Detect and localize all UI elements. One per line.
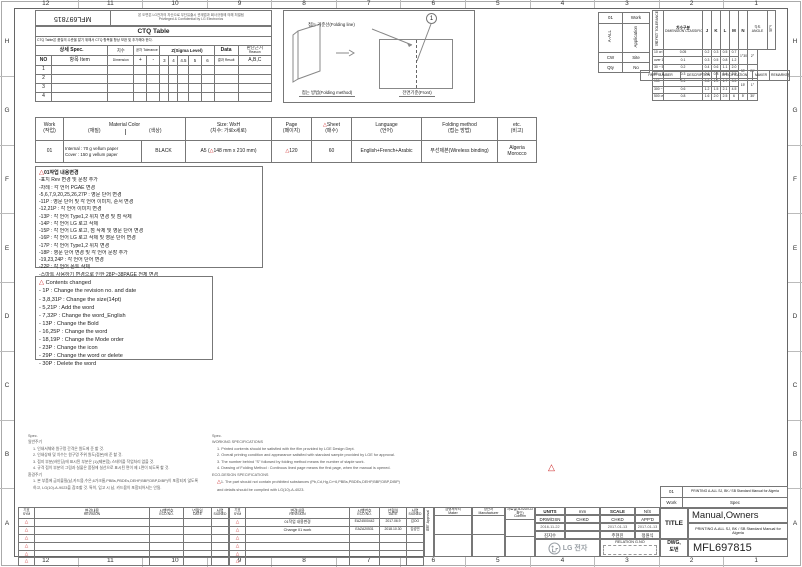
- ruler-col-label: 9: [208, 0, 273, 8]
- tolerance-angle-value: 1°30′: [739, 50, 748, 65]
- revision-text: [35, 558, 150, 566]
- changes-ko-box: △01작업 내용변경 -표지 Rev 변경 및 문장 추가-차례 : 각 언어 …: [35, 166, 263, 268]
- ctq-empty-cell: [134, 84, 147, 93]
- ctq-empty-cell: [52, 93, 108, 102]
- ruler-col-label: 6: [401, 0, 466, 8]
- ruler-row-label: G: [0, 77, 14, 146]
- ruler-col-label: 5: [466, 557, 531, 567]
- ctq-empty-cell: [134, 75, 147, 84]
- tolerance-angle-value: 5′: [739, 93, 748, 100]
- revision-row: △: [19, 534, 229, 542]
- ruler-col-label: 5: [466, 0, 531, 8]
- tolerance-range: over 10 ~ 30 or less: [653, 57, 664, 64]
- revision-triangle-icon: △: [25, 558, 28, 563]
- change-line: - 16,25P : Change the word: [39, 328, 209, 336]
- ruler-col-label: 10: [143, 0, 208, 8]
- spec-material-value: Internal : 70 g vellum paperCover : 150 …: [64, 141, 142, 163]
- tolerance-value: 2.0: [712, 93, 721, 100]
- revision-sym-cell: △: [19, 550, 35, 558]
- ctq-row: 4: [36, 93, 272, 102]
- revision-date: [380, 550, 407, 558]
- ctq-row-number: 4: [36, 93, 52, 102]
- tolerance-value: 6: [730, 93, 739, 100]
- ruler-row-label: A: [0, 489, 14, 557]
- revision-text: [246, 558, 350, 566]
- ruler-col-label: 1: [724, 0, 788, 8]
- notes-left: Spec.일반주기1. 인쇄서체와 원구멍 간격은 원도에 준 할 것.2. 인…: [28, 433, 210, 491]
- revision-eco-no: [150, 519, 184, 527]
- tolerance-value: 0.7: [730, 50, 739, 57]
- ctq-row-number: 3: [36, 84, 52, 93]
- revision-text: [246, 550, 350, 558]
- folding-diagram: 1 접는 기준선(Folding line) 접는 방법(Folding met…: [283, 10, 475, 103]
- revision-table-right: 기호SYM 변경내용REVISION 시행번호ECO.NO. 년월일DATE 서…: [229, 507, 424, 566]
- revision-eco-no: [150, 542, 184, 550]
- ctq-empty-cell: [238, 66, 271, 75]
- front-view-square: [379, 39, 453, 89]
- notes-line: 하고, LG(10)-A-9023을 참조할 것. 특히, 입고 시 납, 카드…: [28, 485, 210, 491]
- lg-logo: LG 전자: [535, 539, 600, 557]
- ctq-empty-cell: [52, 75, 108, 84]
- change-line: - 5,21P : Add the word: [39, 304, 209, 312]
- tolerance-side-label: 일반공차 TOLERANCE: [656, 11, 659, 46]
- revision-sym-cell: △: [19, 534, 35, 542]
- drw-dsn-label: DRW/DSN: [535, 515, 565, 523]
- ctq-col-spec: 상세 Spec.: [36, 46, 108, 56]
- revision-eco-no: [150, 526, 184, 534]
- ctq-empty-cell: [214, 75, 238, 84]
- revision-row: △: [230, 534, 424, 542]
- change-line: - 13P : Change the Bold: [39, 320, 209, 328]
- revision-signed: [407, 550, 424, 558]
- ruler-col-label: 1: [724, 557, 788, 567]
- ctq-empty-cell: [238, 93, 271, 102]
- tolerance-value: 0.05: [664, 50, 703, 57]
- dwg-number: MFL697815: [688, 539, 788, 557]
- ruler-row-label: F: [788, 146, 802, 215]
- revision-row: △: [19, 519, 229, 527]
- ruler-row-label: B: [0, 421, 14, 490]
- ruler-row-label: G: [788, 77, 802, 146]
- change-line: -22P : 각 언어 폰트 삭제: [39, 264, 259, 271]
- change-line: -18P : 영문 단어 변경 및 각 언어 문장 추가: [39, 250, 259, 257]
- revision-row: △: [19, 542, 229, 550]
- callout-1: 1: [426, 13, 437, 24]
- ctq-empty-cell: [201, 75, 214, 84]
- revision-date: [184, 542, 212, 550]
- revision-triangle-icon: △: [25, 527, 28, 532]
- revision-sym-cell: △: [230, 534, 246, 542]
- confirm-column: 자료실(3D/2D/CD확인)Confirm: [505, 507, 535, 557]
- ruler-row-label: E: [788, 214, 802, 283]
- revision-eco-no: [350, 534, 380, 542]
- revision-triangle-icon: △: [236, 519, 239, 524]
- appd-name: 정원식: [635, 531, 660, 539]
- ctq-empty-cell: [214, 93, 238, 102]
- revision-mark-triangle: △: [548, 462, 555, 473]
- spec-color-value: BLACK: [142, 141, 186, 163]
- revision-triangle-icon: △: [25, 535, 28, 540]
- revision-date: 2018.10.30: [380, 526, 407, 534]
- tolerance-range: 10 or less: [653, 50, 664, 57]
- tolerance-value: 2.1: [721, 86, 730, 93]
- ctq-empty-cell: [169, 84, 178, 93]
- ctq-empty-cell: [178, 66, 189, 75]
- change-line: -19,23,24P : 각 언어 단어 변경: [39, 257, 259, 264]
- revision-sym-cell: △: [230, 542, 246, 550]
- ruler-row-label: H: [0, 8, 14, 77]
- ctq-empty-cell: [189, 93, 201, 102]
- revision-signed: [212, 558, 229, 566]
- ctq-empty-cell: [52, 84, 108, 93]
- header-left-block: MFL697815 본 도면은 LG전자의 자산으로 무단유출시 관계법과 회사…: [35, 10, 272, 102]
- work-application-table: 01Work A-ALLApplication CWSite QtyNo: [598, 12, 650, 73]
- revision-text: Change 01 work: [246, 526, 350, 534]
- tolerance-angle-value: 2°: [748, 50, 758, 65]
- revision-date: [380, 542, 407, 550]
- revision-row: △01작업 내용변경EAZ45004422017.06.9김OO: [230, 519, 424, 527]
- drw-date: 2016-11-22: [535, 523, 565, 531]
- doc-number-flipped-cell: MFL697815: [36, 11, 111, 26]
- revision-triangle-icon: △: [236, 535, 239, 540]
- revision-triangle-icon: △: [236, 527, 239, 532]
- change-line: -차례 : 각 언어 PGAE 변경: [39, 185, 259, 192]
- revision-date: [380, 558, 407, 566]
- revision-date: 2017.06.9: [380, 519, 407, 527]
- change-line: -5,6,7,9,20,25,26,27P : 영문 단어 변경: [39, 192, 259, 199]
- ruler-row-label: H: [788, 8, 802, 77]
- ctq-col-dim: 치수: [108, 46, 134, 56]
- ctq-empty-cell: [169, 93, 178, 102]
- mini-spec-text: PRINTING A-ALL SJ, BK / SB Standard Manu…: [683, 487, 788, 498]
- revision-sym-cell: △: [19, 558, 35, 566]
- revision-sym-cell: △: [230, 519, 246, 527]
- ctq-col-data: Data: [214, 46, 238, 56]
- spec-h-work: Work(작업): [36, 118, 64, 141]
- ctq-empty-cell: [147, 84, 160, 93]
- ruler-row-label: C: [0, 352, 14, 421]
- ctq-row-number: 2: [36, 75, 52, 84]
- tolerance-row: 500 over0.81.62.02.565′30′: [653, 93, 776, 100]
- tolerance-value: 1.6: [703, 93, 712, 100]
- revision-date: [184, 550, 212, 558]
- spec-table: Work(작업) Material Color (재질)(색상) Size: W…: [35, 117, 537, 163]
- ctq-empty-cell: [160, 93, 169, 102]
- tolerance-value: 0.5: [712, 57, 721, 64]
- change-line: -17P : 각 언어 Type1,2 위치 변경: [39, 243, 259, 250]
- drawing-sheet: 121110987654321 121110987654321 HGFEDCBA…: [0, 0, 802, 567]
- tolerance-angle-value: 30′: [748, 93, 758, 100]
- notes-line: and details should be complied with LG(1…: [212, 487, 452, 493]
- spec-h-sheet: △Sheet(매수): [312, 118, 352, 141]
- spec-size-value: A5 (△148 mm x 210 mm): [186, 141, 272, 163]
- ctq-empty-cell: [201, 84, 214, 93]
- subtitle-value: PRINTING A-ALL SJ, BK / SB Standard Manu…: [688, 523, 788, 539]
- revision-text: [35, 519, 150, 527]
- ctq-col-sigma: Z(Sigma Level): [160, 46, 214, 56]
- revision-triangle-icon: △: [236, 551, 239, 556]
- chkd2-name: 주현진: [600, 531, 635, 539]
- changes-en-lines: - 1P : Change the revision no. and date-…: [39, 287, 209, 368]
- revision-signed: [212, 526, 229, 534]
- ruler-col-label: 4: [531, 557, 596, 567]
- ruler-col-label: 4: [531, 0, 596, 8]
- revision-eco-no: [150, 558, 184, 566]
- ctq-empty-cell: [134, 93, 147, 102]
- spec-folding-value: 무선제본(Wireless binding): [422, 141, 498, 163]
- ctq-empty-cell: [160, 75, 169, 84]
- ctq-empty-cell: [214, 66, 238, 75]
- revision-text: [246, 542, 350, 550]
- folding-method-label: 접는 방법(Folding method): [299, 90, 356, 97]
- spec-h-folding: Folding method(접는 방법): [422, 118, 498, 141]
- approval-column: 합의 Approval: [424, 507, 434, 557]
- ruler-row-label: E: [0, 214, 14, 283]
- tolerance-value: 0.8: [721, 57, 730, 64]
- tolerance-row: 10 or less0.050.20.30.50.71°30′2°: [653, 50, 776, 57]
- spec-language-value: English+French+Arabic: [352, 141, 422, 163]
- revision-sym-cell: △: [230, 558, 246, 566]
- mini-work-no: 01: [661, 487, 683, 498]
- spec-h-page: Page(페이지): [272, 118, 312, 141]
- spec-h-etc: etc.(비고): [498, 118, 537, 141]
- revision-sym-cell: △: [230, 550, 246, 558]
- ctq-empty-cell: [178, 84, 189, 93]
- revision-signed: [212, 542, 229, 550]
- revision-row: △: [19, 558, 229, 566]
- change-line: - 23P : Change the icon: [39, 344, 209, 352]
- ctq-empty-cell: [189, 84, 201, 93]
- ctq-empty-cell: [178, 93, 189, 102]
- relation-gno-box: [603, 545, 657, 555]
- doc-number-flipped: MFL697815: [54, 14, 91, 22]
- ctq-col-tol: 공차 Tolerance: [134, 46, 160, 56]
- ctq-empty-cell: [189, 66, 201, 75]
- revision-row: △: [230, 542, 424, 550]
- maker-column: 금형제작처Maker: [434, 507, 472, 557]
- tolerance-value: 1.2: [703, 86, 712, 93]
- ruler-col-label: 2: [660, 0, 725, 8]
- revision-sym-cell: △: [230, 526, 246, 534]
- tolerance-value: 1.5: [712, 86, 721, 93]
- ctq-empty-cell: [160, 84, 169, 93]
- ctq-empty-cell: [238, 75, 271, 84]
- ruler-col-label: 7: [337, 0, 402, 8]
- ruler-col-label: 3: [595, 0, 660, 8]
- change-line: - 3,8,31P : Change the size(14pt): [39, 296, 209, 304]
- spec-h-language: Language(언어): [352, 118, 422, 141]
- drw-name: 김지수: [535, 531, 565, 539]
- lg-logo-icon: [548, 542, 561, 555]
- change-line: -표지 Rev 변경 및 문장 추가: [39, 177, 259, 184]
- units-value: mm: [565, 507, 600, 515]
- change-line: -16P : 각 언어 LG 로고 삭제 및 영문 단어 변경: [39, 235, 259, 242]
- tolerance-value: 1.2: [730, 57, 739, 64]
- mini-spec-label: Spec: [683, 498, 788, 509]
- tolerance-value: 0.5: [721, 50, 730, 57]
- revision-date: [184, 526, 212, 534]
- spec-etc-value: AlgeriaMorocco: [498, 141, 537, 163]
- tolerance-value: 0.3: [703, 57, 712, 64]
- revision-eco-no: [350, 542, 380, 550]
- folding-line-dashed: [416, 40, 417, 88]
- notes-mid: Spec.WORKING SPECIFICATIONS1. Printed co…: [212, 433, 452, 493]
- revision-eco-no: [150, 550, 184, 558]
- chkd2-label: CHKD: [600, 515, 635, 523]
- revision-eco-no: EAZA20531: [350, 526, 380, 534]
- revision-triangle-icon: △: [217, 479, 221, 485]
- part-number-row: PART NUMBER DESCRIPTION SPECIFICATION MA…: [640, 70, 790, 81]
- tolerance-value: 0.1: [664, 57, 703, 64]
- ctq-empty-cell: [52, 66, 108, 75]
- notes-line: 1. 본 부품에 금지물질(납,카드뮴,수은,6가크롬,PBBs,PBDEs,D…: [28, 478, 210, 484]
- ruler-row-label: D: [788, 283, 802, 352]
- ctq-empty-cell: [108, 66, 134, 75]
- ruler-row-label: B: [788, 421, 802, 490]
- ctq-table: CTQ Table CTQ Table은 품질의 수준을 알기 위해서 CTQ …: [35, 26, 272, 102]
- ruler-left: HGFEDCBA: [0, 8, 14, 557]
- tolerance-range: 300 ~ 500: [653, 86, 664, 93]
- revision-signed: [212, 519, 229, 527]
- tolerance-value: 0.6: [664, 86, 703, 93]
- revision-sym-cell: △: [19, 542, 35, 550]
- folding-line-label: 접는 기준선(Folding line): [308, 22, 355, 28]
- change-line: - 18,19P : Change the Mode order: [39, 336, 209, 344]
- confidential-notice: 본 도면은 LG전자의 자산으로 무단유출시 관계법과 회사규정에 의해 처벌됨…: [111, 11, 272, 26]
- scale-label: SCALE: [600, 507, 635, 515]
- spec-h-size: Size: WxH(치수: 가로x세로): [186, 118, 272, 141]
- ctq-title: CTQ Table: [36, 27, 272, 37]
- ctq-empty-cell: [147, 66, 160, 75]
- ruler-row-label: F: [0, 146, 14, 215]
- tolerance-value: 0.8: [664, 93, 703, 100]
- ctq-empty-cell: [108, 75, 134, 84]
- ctq-empty-cell: [238, 84, 271, 93]
- change-line: -12,21P : 각 언어 이미지 변경: [39, 206, 259, 213]
- revision-date: [184, 558, 212, 566]
- revision-row: △Change 01 workEAZA205312018.10.30김성민: [230, 526, 424, 534]
- scale-value: N/S: [635, 507, 660, 515]
- ruler-top: 121110987654321: [14, 0, 788, 8]
- revision-date: [184, 534, 212, 542]
- ctq-empty-cell: [201, 66, 214, 75]
- revision-sym-cell: △: [19, 526, 35, 534]
- mini-work-label: Work: [661, 498, 683, 509]
- ctq-empty-cell: [178, 75, 189, 84]
- revision-text: [35, 526, 150, 534]
- revision-signed: 김OO: [407, 519, 424, 527]
- revision-signed: [212, 534, 229, 542]
- spec-work-value: 01: [36, 141, 64, 163]
- mini-work-spec-table: 01PRINTING A-ALL SJ, BK / SB Standard Ma…: [660, 486, 788, 509]
- appd-label: APP'D: [635, 515, 660, 523]
- ctq-row: 2: [36, 75, 272, 84]
- change-line: - 7,32P : Change the word_English: [39, 312, 209, 320]
- revision-row: △: [230, 558, 424, 566]
- change-line: -11P : 영문 단어 및 각 언어 이미지, 순서 변경: [39, 199, 259, 206]
- revision-table-left: 기호SYM 변경내용REVISION 시행번호ECO.NO. 년월일DATE 서…: [18, 507, 229, 566]
- tolerance-range: 500 over: [653, 93, 664, 100]
- ctq-empty-cell: [147, 93, 160, 102]
- front-label: 전면기준(Front): [399, 90, 434, 97]
- revision-date: [380, 534, 407, 542]
- change-line: - 30P : Delete the word: [39, 360, 209, 368]
- revision-text: [35, 550, 150, 558]
- relation-gno: RELATION G.NO: [600, 539, 660, 557]
- ruler-col-label: 12: [14, 0, 79, 8]
- ctq-row: 1: [36, 66, 272, 75]
- notes-line: △1. The part should not contain prohibit…: [212, 478, 452, 487]
- tolerance-remark-label: 비고: [770, 25, 773, 32]
- ruler-col-label: 2: [660, 557, 725, 567]
- revision-triangle-icon: △: [25, 519, 28, 524]
- revision-row: △: [230, 550, 424, 558]
- change-line: - 1P : Change the revision no. and date: [39, 287, 209, 295]
- changes-ko-lines: -표지 Rev 변경 및 문장 추가-차례 : 각 언어 PGAE 변경-5,6…: [39, 177, 259, 279]
- revision-signed: [212, 550, 229, 558]
- revision-triangle-icon: △: [39, 279, 44, 286]
- manufacturer-column: 양산처Manufacturer: [472, 507, 505, 557]
- revision-signed: [407, 534, 424, 542]
- ctq-empty-cell: [147, 75, 160, 84]
- chkd2-date: 2017-01-13: [600, 523, 635, 531]
- ruler-row-label: D: [0, 283, 14, 352]
- revision-row: △: [19, 550, 229, 558]
- change-line: -13P : 각 언어 Type1,2 위치 변경 및 점 삭제: [39, 214, 259, 221]
- revision-text: [246, 534, 350, 542]
- revision-sym-cell: △: [19, 519, 35, 527]
- title-value: Manual,Owners: [688, 507, 788, 523]
- ruler-row-label: C: [788, 352, 802, 421]
- tolerance-value: 0.3: [712, 50, 721, 57]
- revision-eco-no: [150, 534, 184, 542]
- ctq-empty-cell: [201, 93, 214, 102]
- ctq-row: 3: [36, 84, 272, 93]
- revision-text: [35, 542, 150, 550]
- tolerance-value: 2.5: [721, 93, 730, 100]
- ruler-col-label: 11: [79, 0, 144, 8]
- ctq-empty-cell: [108, 84, 134, 93]
- ctq-empty-cell: [169, 66, 178, 75]
- revision-text: [35, 534, 150, 542]
- ctq-empty-cell: [189, 75, 201, 84]
- ctq-empty-cell: [134, 66, 147, 75]
- chkd-label: CHKD: [565, 515, 600, 523]
- title-label: TITLE: [660, 507, 688, 539]
- revision-row: △: [19, 526, 229, 534]
- ctq-note: CTQ Table은 품질의 수준을 알기 위해서 CTQ 항목을 항상 보완 …: [36, 37, 272, 46]
- revision-signed: 김성민: [407, 526, 424, 534]
- revision-triangle-icon: △: [236, 543, 239, 548]
- tolerance-table: 일반공차 TOLERANCE 치수구분DIMENSION CLASSIFICAT…: [652, 10, 775, 101]
- changes-en-box: △ Contents changed - 1P : Change the rev…: [35, 276, 213, 360]
- change-line: -14P : 각 언어 LG 로고 삭제: [39, 221, 259, 228]
- revision-signed: [407, 542, 424, 550]
- ruler-col-label: 3: [595, 557, 660, 567]
- changes-en-title: Contents changed: [46, 280, 91, 286]
- dwg-label: DWG,도번: [660, 539, 688, 557]
- revision-eco-no: [350, 558, 380, 566]
- ctq-row-number: 1: [36, 66, 52, 75]
- tolerance-value: 4.5: [730, 86, 739, 93]
- revision-eco-no: EAZ4500442: [350, 519, 380, 527]
- revision-triangle-icon: △: [25, 551, 28, 556]
- ctq-empty-cell: [169, 75, 178, 84]
- revision-signed: [407, 558, 424, 566]
- units-label: UNITS: [535, 507, 565, 515]
- spec-h-material-color: Material Color (재질)(색상): [64, 118, 186, 141]
- ruler-col-label: 8: [272, 0, 337, 8]
